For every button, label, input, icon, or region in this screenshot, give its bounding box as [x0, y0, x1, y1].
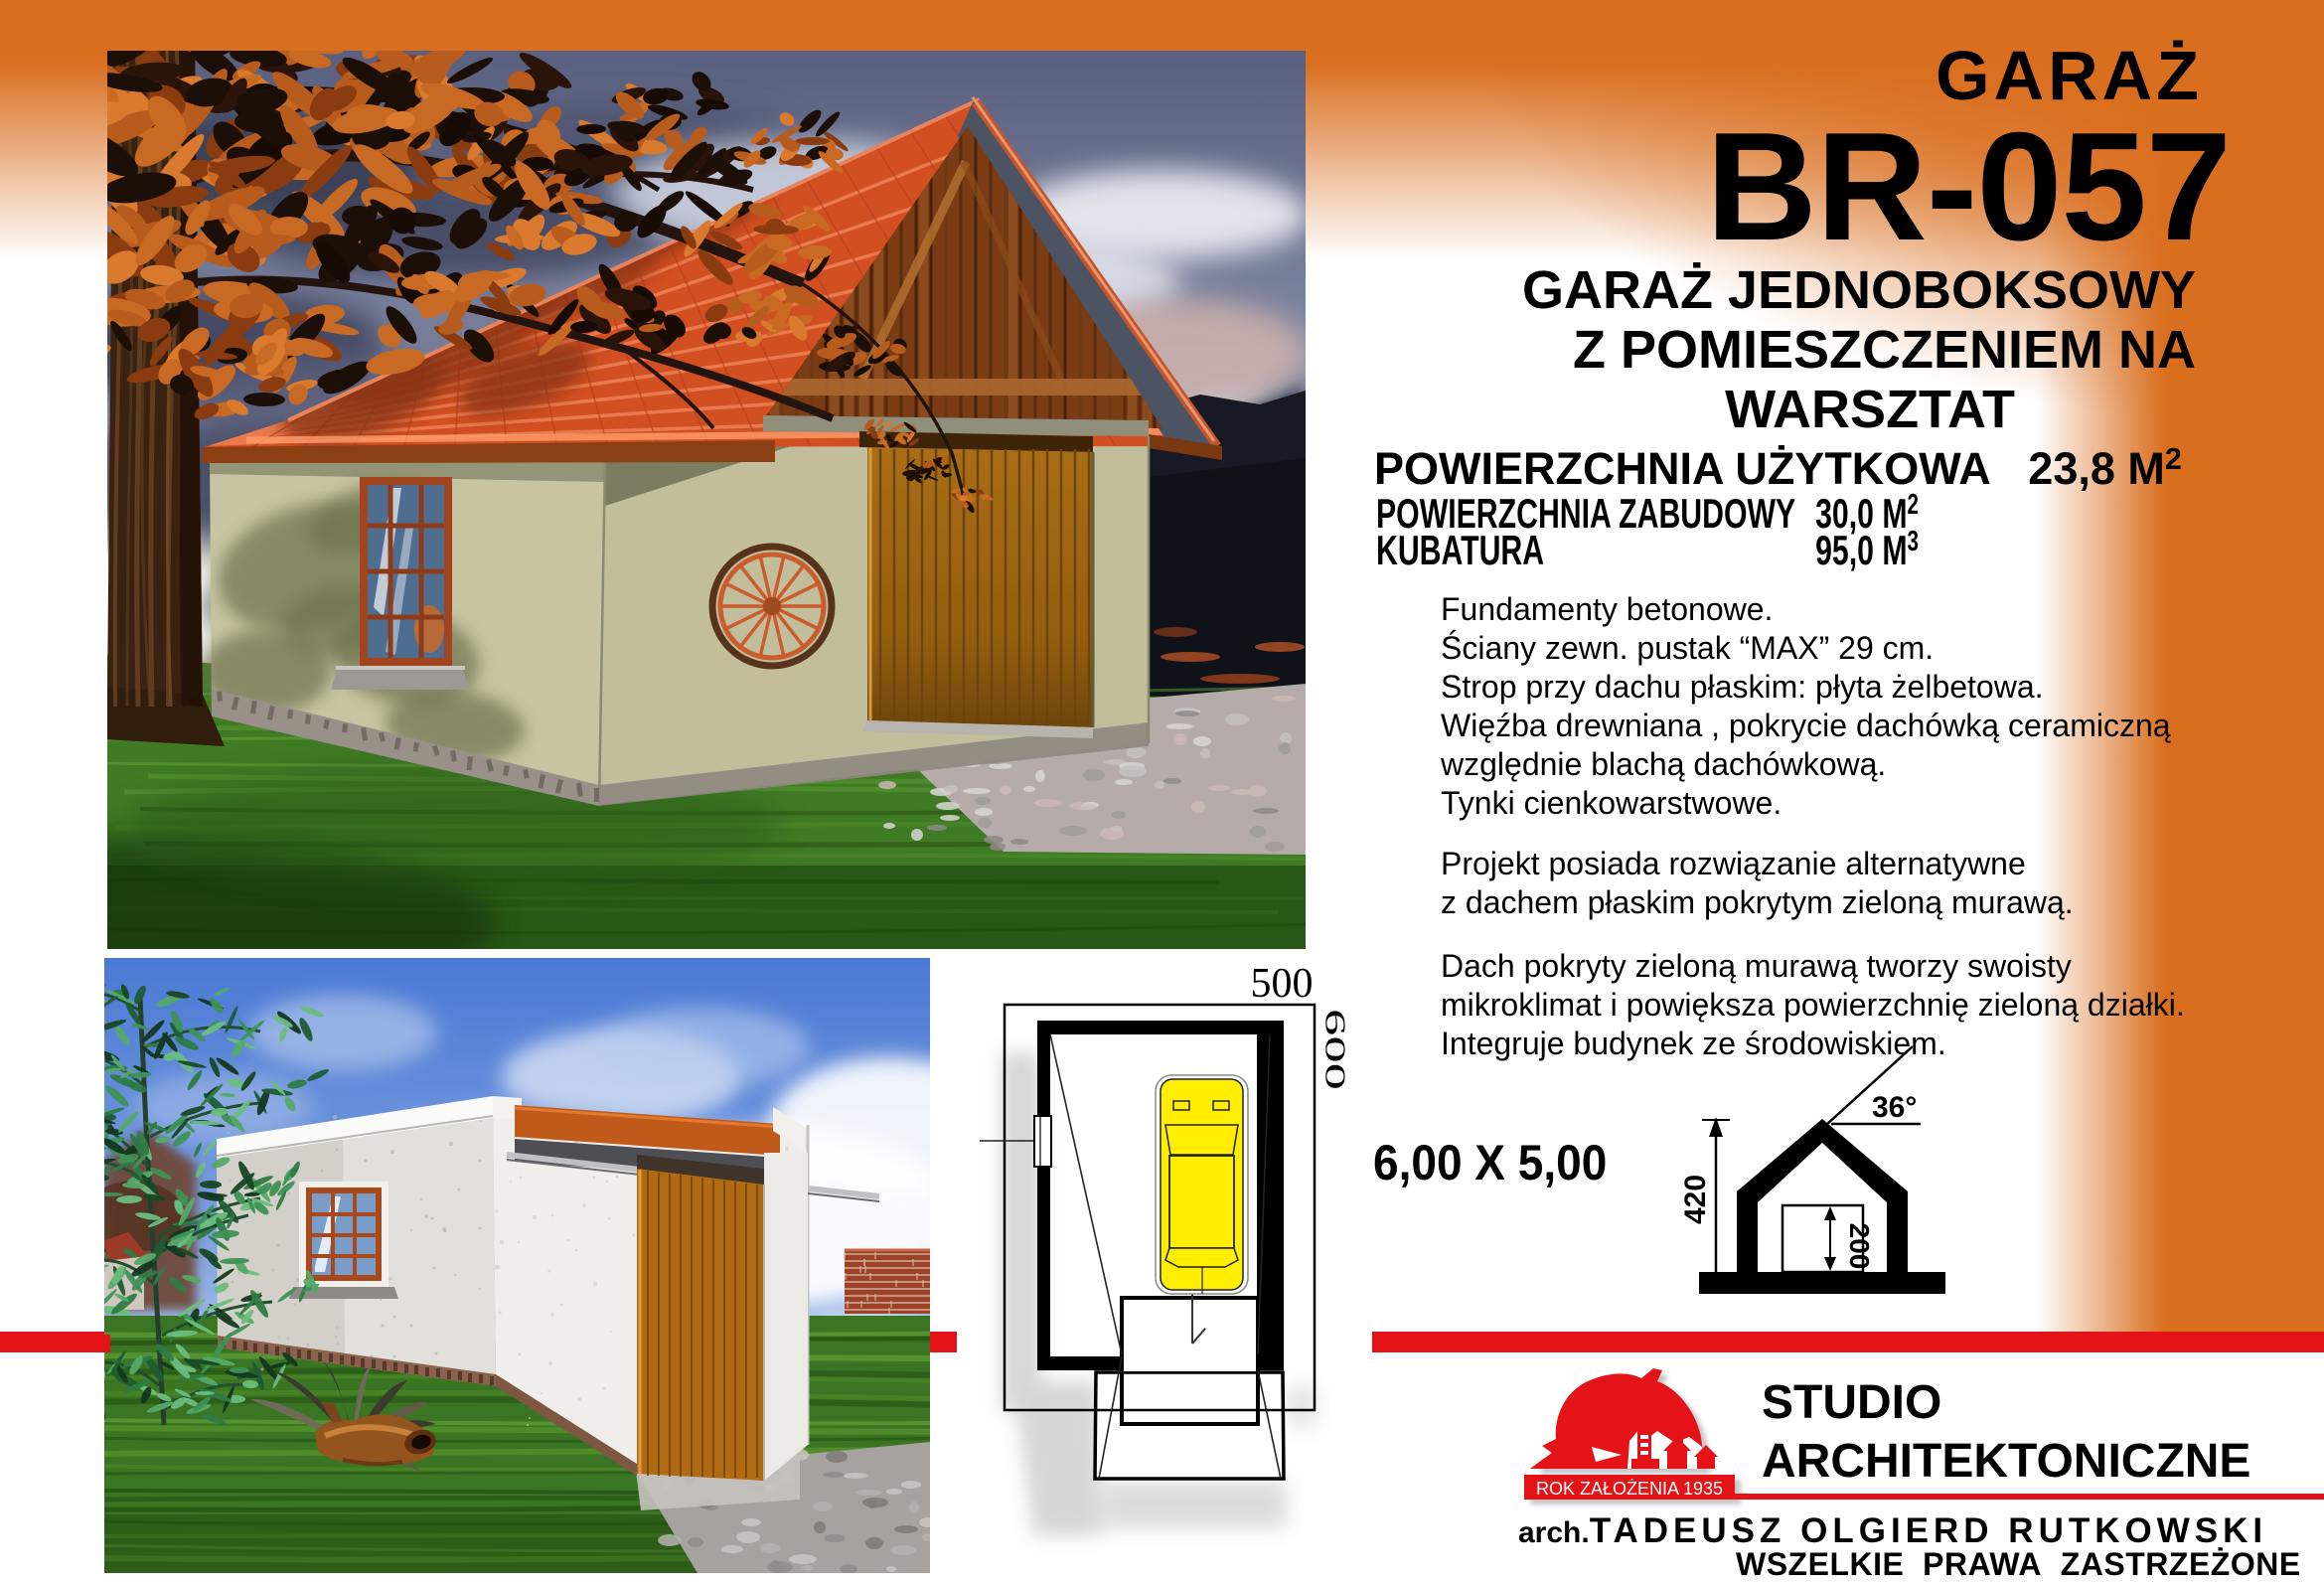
- svg-text:36°: 36°: [1872, 1091, 1917, 1124]
- svg-text:200: 200: [1844, 1223, 1875, 1270]
- svg-text:ROK ZAŁOŻENIA 1935: ROK ZAŁOŻENIA 1935: [1536, 1479, 1723, 1499]
- svg-text:600: 600: [1319, 1009, 1350, 1090]
- svg-text:420: 420: [1679, 1175, 1712, 1224]
- svg-text:500: 500: [1251, 961, 1314, 1007]
